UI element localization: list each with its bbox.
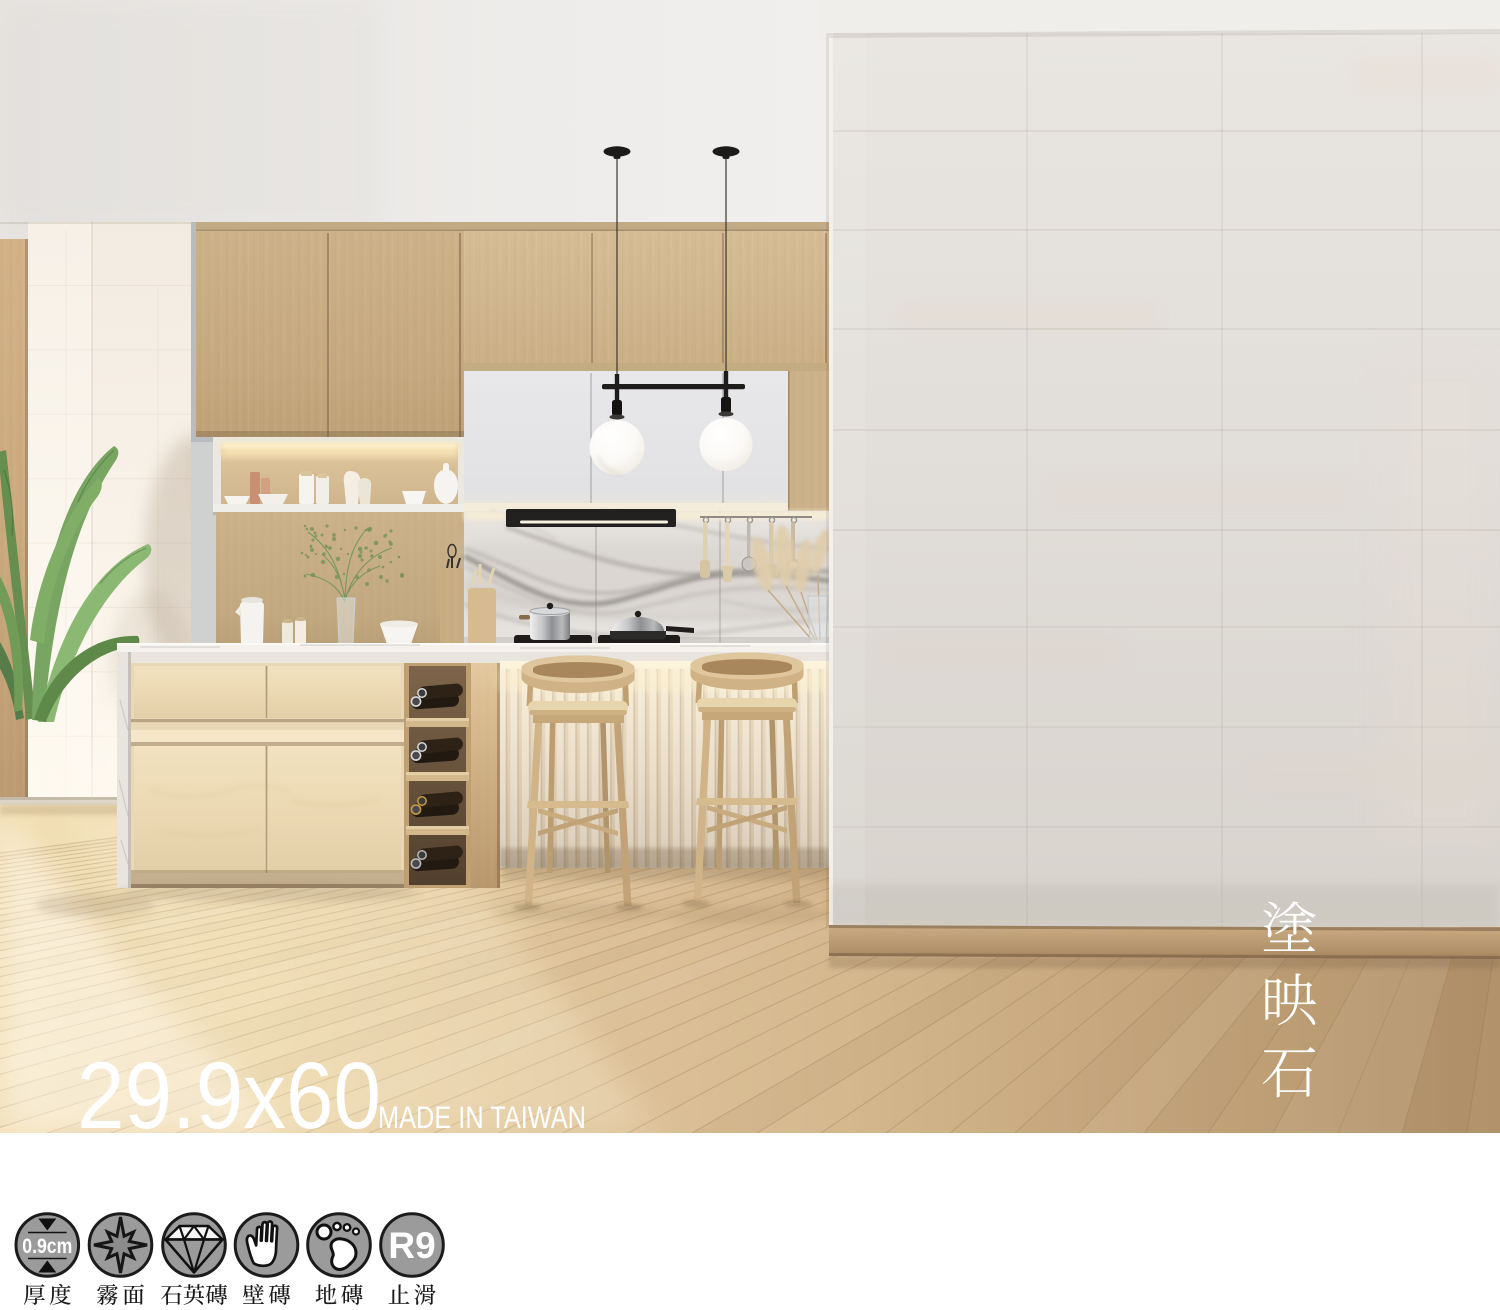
svg-text:29.9x60: 29.9x60 [77,1043,381,1149]
svg-text:R9: R9 [388,1225,435,1266]
svg-text:MADE IN TAIWAN: MADE IN TAIWAN [378,1099,586,1135]
svg-text:0.9cm: 0.9cm [22,1235,72,1258]
